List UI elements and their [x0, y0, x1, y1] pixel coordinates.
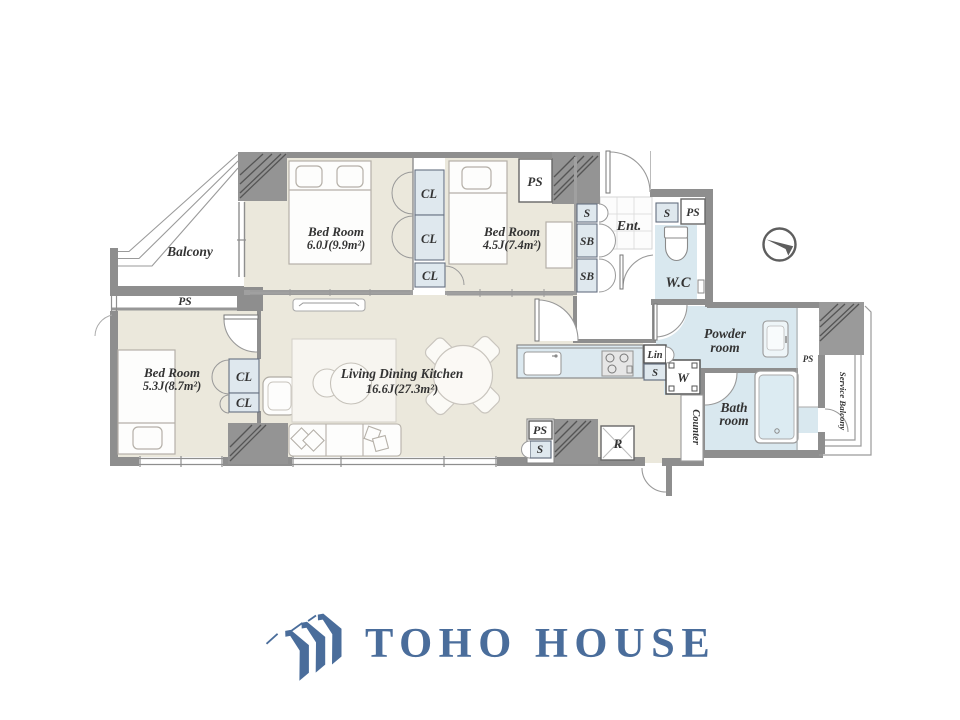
svg-text:CL: CL [421, 232, 437, 246]
svg-text:Service Balcony: Service Balcony [838, 372, 848, 430]
svg-text:CL: CL [236, 396, 252, 410]
svg-text:TOHO HOUSE: TOHO HOUSE [365, 620, 716, 667]
svg-text:Lin: Lin [646, 350, 662, 361]
svg-text:Ent.: Ent. [616, 219, 642, 234]
svg-text:PS: PS [533, 423, 547, 437]
svg-text:CL: CL [422, 269, 438, 283]
svg-text:5.3J(8.7m²): 5.3J(8.7m²) [143, 379, 201, 393]
svg-text:PS: PS [527, 174, 542, 189]
svg-text:16.6J(27.3m²): 16.6J(27.3m²) [366, 382, 438, 396]
svg-text:W.C: W.C [665, 275, 690, 291]
svg-text:6.0J(9.9m²): 6.0J(9.9m²) [307, 238, 365, 252]
svg-text:SB: SB [580, 271, 594, 283]
svg-text:CL: CL [421, 187, 437, 201]
svg-text:W: W [677, 370, 690, 385]
svg-text:room: room [719, 413, 748, 428]
svg-text:S: S [537, 444, 543, 456]
svg-text:CL: CL [236, 370, 252, 384]
svg-text:PS: PS [686, 207, 699, 219]
svg-text:Bed Room: Bed Room [143, 365, 200, 380]
svg-text:R: R [613, 436, 623, 451]
svg-text:PS: PS [803, 354, 814, 364]
svg-text:S: S [652, 368, 658, 379]
svg-text:room: room [710, 340, 739, 355]
svg-text:Balcony: Balcony [166, 244, 214, 259]
svg-text:4.5J(7.4m²): 4.5J(7.4m²) [482, 238, 541, 252]
svg-text:Powder: Powder [704, 326, 747, 341]
svg-text:SB: SB [580, 236, 594, 248]
svg-text:S: S [664, 208, 670, 220]
svg-text:PS: PS [178, 296, 191, 308]
svg-text:Counter: Counter [690, 409, 701, 446]
svg-text:S: S [584, 208, 590, 220]
svg-text:Bed Room: Bed Room [483, 224, 540, 239]
svg-text:Bed Room: Bed Room [307, 224, 364, 239]
svg-text:Living Dining Kitchen: Living Dining Kitchen [340, 366, 463, 381]
